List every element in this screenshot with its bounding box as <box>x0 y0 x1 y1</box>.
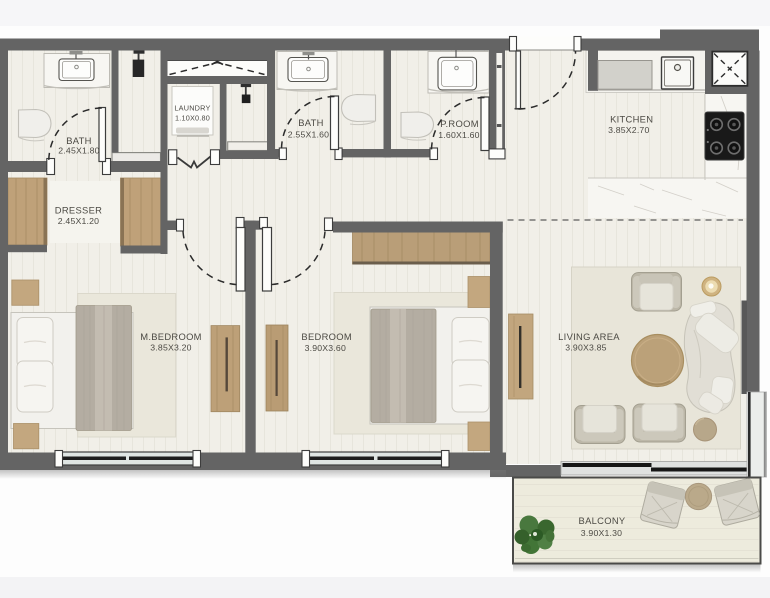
svg-text:BALCONY: BALCONY <box>579 515 626 526</box>
svg-text:1.60X1.60: 1.60X1.60 <box>438 130 479 140</box>
svg-text:2.45X1.20: 2.45X1.20 <box>58 216 99 226</box>
svg-text:BEDROOM: BEDROOM <box>301 331 352 342</box>
svg-text:3.90X1.30: 3.90X1.30 <box>581 528 622 538</box>
svg-text:3.90X3.60: 3.90X3.60 <box>305 343 346 353</box>
svg-text:M.BEDROOM: M.BEDROOM <box>140 331 202 342</box>
svg-text:2.55X1.60: 2.55X1.60 <box>288 130 329 140</box>
svg-text:P.ROOM: P.ROOM <box>440 118 479 129</box>
svg-text:3.90X3.85: 3.90X3.85 <box>565 343 606 353</box>
svg-text:KITCHEN: KITCHEN <box>610 114 653 125</box>
svg-text:3.85X2.70: 3.85X2.70 <box>608 125 649 135</box>
svg-text:LIVING AREA: LIVING AREA <box>558 331 620 342</box>
svg-text:2.45X1.80: 2.45X1.80 <box>58 146 99 156</box>
svg-text:LAUNDRY: LAUNDRY <box>174 104 210 113</box>
svg-text:BATH: BATH <box>298 117 324 128</box>
svg-text:1.10X0.80: 1.10X0.80 <box>175 114 210 123</box>
svg-text:BATH: BATH <box>66 135 92 146</box>
svg-text:DRESSER: DRESSER <box>55 205 102 216</box>
svg-text:3.85X3.20: 3.85X3.20 <box>150 343 191 353</box>
